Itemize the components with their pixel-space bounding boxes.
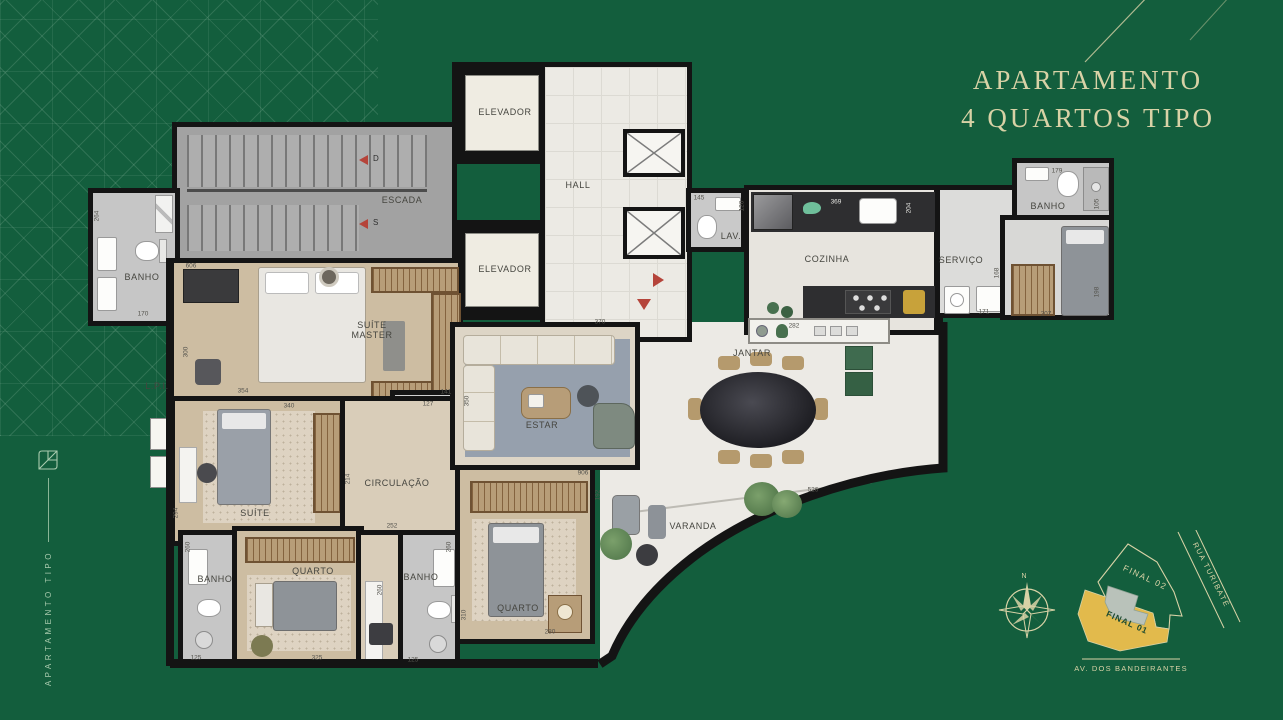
room-label-escada: ESCADA — [382, 195, 423, 205]
dimension-label: 260 — [377, 585, 384, 596]
dimension-label: 300 — [183, 347, 190, 358]
page: { "title": {"line1": "APARTAMENTO", "lin… — [0, 0, 1283, 720]
dimension-label: 179 — [1052, 168, 1063, 175]
room-label-elevador-1: ELEVADOR — [478, 107, 531, 117]
room-desk-nook — [356, 530, 404, 666]
dimension-label: 125 — [408, 657, 419, 664]
dimension-label: 370 — [595, 319, 606, 326]
street-label-av-bandeirantes: AV. DOS BANDEIRANTES — [1074, 664, 1188, 673]
room-label-cozinha: COZINHA — [805, 254, 850, 264]
bar-cabinet — [845, 372, 873, 396]
room-label-estar: ESTAR — [526, 420, 558, 430]
street-label-rua-turibate: RUA TURIBATÉ — [1191, 541, 1232, 609]
dimension-label: 350 — [464, 396, 471, 407]
room-quarto-2 — [455, 462, 595, 644]
dimension-label: 369 — [831, 199, 842, 206]
room-label-hall: HALL — [566, 180, 591, 190]
dimension-label: 282 — [789, 323, 800, 330]
varanda-chair — [648, 505, 666, 539]
site-map: FINAL 02 FINAL 01 RUA TURIBATÉ AV. DOS B… — [1060, 530, 1283, 690]
room-quarto-1 — [232, 526, 364, 666]
room-circulacao — [340, 396, 462, 546]
dimension-label: 294 — [173, 508, 180, 519]
bar-cabinet — [845, 346, 873, 370]
kitchen-island — [748, 318, 890, 344]
dimension-label: 145 — [694, 195, 705, 202]
room-label-suite: SUÍTE — [240, 508, 270, 518]
room-label-varanda: VARANDA — [669, 521, 716, 531]
dimension-label: 105 — [1094, 199, 1101, 210]
svg-text:N: N — [1021, 573, 1026, 580]
site-final-02-label: FINAL 02 — [1122, 563, 1169, 592]
room-suite-2 — [170, 396, 345, 546]
room-label-elevador-2: ELEVADOR — [478, 264, 531, 274]
room-label-banho-4: BANHO — [403, 572, 438, 582]
room-label-lav: LAV. — [721, 231, 741, 241]
room-estar — [450, 322, 640, 470]
dimension-label: 606 — [186, 263, 197, 270]
room-label-quarto-1: QUARTO — [292, 566, 334, 576]
dimension-label: 207 — [1041, 311, 1052, 318]
dimension-label: 127 — [423, 401, 434, 408]
dimension-label: 171 — [979, 309, 990, 316]
dimension-label: 906 — [578, 470, 589, 477]
dimension-label: 264 — [94, 211, 101, 222]
room-label-suite-master: SUÍTE MASTER — [351, 320, 392, 340]
dimension-label: 198 — [1094, 287, 1101, 298]
dimension-label: 170 — [138, 311, 149, 318]
shaft-box — [623, 129, 685, 177]
dimension-label: 325 — [312, 655, 323, 662]
dimension-label: 214 — [345, 474, 352, 485]
room-label-jantar: JANTAR — [733, 348, 771, 358]
dimension-label: 192 — [595, 490, 602, 501]
dimension-label: 260 — [446, 542, 453, 553]
compass-rose: N — [994, 568, 1060, 644]
entry-arrow-right — [653, 273, 664, 287]
dimension-label: 204 — [906, 203, 913, 214]
room-label-banho-suite-master: BANHO — [124, 272, 159, 282]
plant — [600, 528, 632, 560]
room-escada: D S — [172, 122, 457, 264]
room-label-banho-servico: BANHO — [1030, 201, 1065, 211]
varanda-table — [636, 544, 658, 566]
dimension-label: 340 — [284, 403, 295, 410]
shaft-box — [623, 207, 685, 259]
room-label-circulacao: CIRCULAÇÃO — [364, 478, 429, 488]
stair-direction-d: D — [373, 154, 379, 163]
dimension-label: 260 — [185, 542, 192, 553]
room-label-lpi: L.P.I. — [145, 381, 168, 391]
dimension-label: 125 — [191, 655, 202, 662]
dimension-label: 310 — [461, 610, 468, 621]
room-label-banho-3: BANHO — [197, 574, 232, 584]
dimension-label: 141 — [441, 389, 452, 396]
plant — [772, 490, 802, 518]
room-quarto-servico — [1000, 215, 1114, 320]
entry-arrow-down — [637, 299, 651, 310]
dimension-label: 168 — [994, 268, 1001, 279]
dimension-label: 252 — [387, 523, 398, 530]
dining-table — [700, 372, 816, 448]
room-label-quarto-2: QUARTO — [497, 603, 539, 613]
dimension-label: 354 — [238, 388, 249, 395]
dimension-label: 120 — [739, 201, 746, 212]
dimension-label: 526 — [808, 487, 819, 494]
dimension-label: 280 — [545, 629, 556, 636]
room-label-servico: SERVIÇO — [939, 255, 984, 265]
stair-direction-s: S — [373, 218, 378, 227]
room-hall — [540, 62, 692, 342]
